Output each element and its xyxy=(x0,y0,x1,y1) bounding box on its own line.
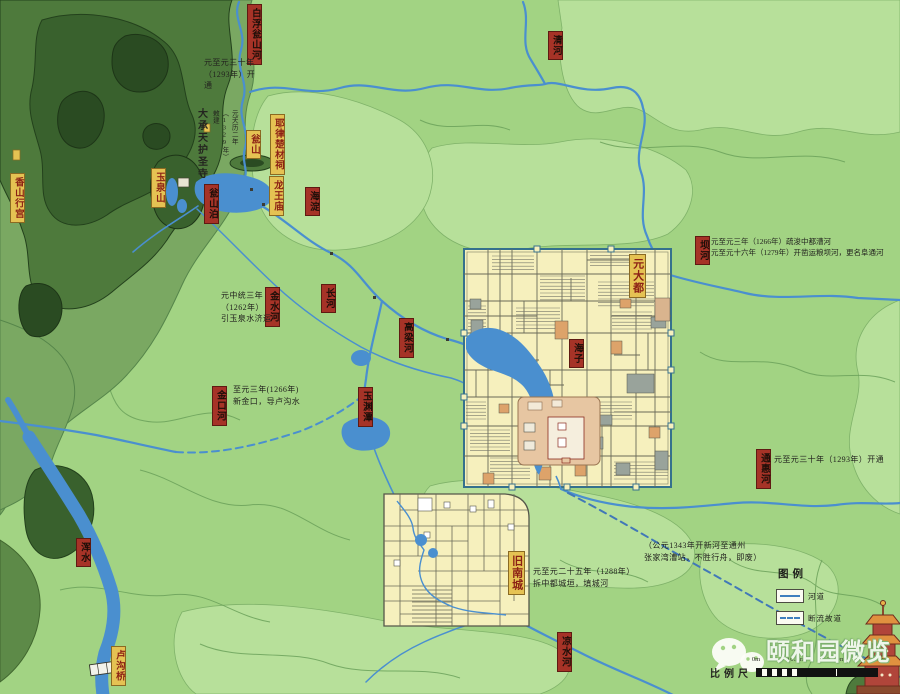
map-label-xiangshan: 香山行宫 xyxy=(10,173,25,223)
map-label-qinghe: 清河 xyxy=(548,31,563,60)
western-mountains xyxy=(0,0,254,682)
legend-box: 图例 河道 断流故道 xyxy=(744,566,842,625)
river-qinghe xyxy=(523,2,545,84)
imperial-palace xyxy=(518,397,600,465)
river-bahe xyxy=(667,274,900,300)
legend-river-label: 河道 xyxy=(808,591,825,602)
legend-dried-sample xyxy=(776,611,804,625)
map-label-note-1329: 元天历二年（1329年）敕建 xyxy=(210,110,238,162)
map-label-yuyuantan: 玉渊潭 xyxy=(358,387,373,427)
scale-bar-title: 比例尺 xyxy=(710,665,752,680)
map-label-yuandadu: 元大都 xyxy=(629,254,646,298)
pond-zizhuyuan xyxy=(351,350,371,366)
map-label-longwang: 龙王庙 xyxy=(269,176,284,216)
river-yuyuantan-outlet xyxy=(374,448,397,501)
map-label-dachengtian: 大承天护圣寺 xyxy=(193,108,208,180)
map-label-yelu: 耶律楚材祠 xyxy=(270,114,285,175)
map-label-note-bahe: 元至元三年（1266年）疏浚中都漕河 元至元十六年（1279年）开凿运粮坝河，更… xyxy=(711,237,884,259)
map-label-tonghuihe: 通惠河 xyxy=(756,449,771,489)
map-label-note-1266jk: 至元三年(1266年) 新金口，导卢沟水 xyxy=(233,384,300,407)
scale-tick-0: 0m xyxy=(752,656,760,663)
map-label-baifu: 白浮瓮山河 xyxy=(247,4,262,65)
map-label-note-1288: 元至元二十五年（1288年） 拆中都城垣，填城河 xyxy=(533,566,635,589)
scale-segments xyxy=(756,668,878,677)
map-label-changhe: 长河 xyxy=(321,284,336,313)
legend-item-dried: 断流故道 xyxy=(744,611,842,625)
legend-item-river: 河道 xyxy=(744,589,842,603)
map-label-yuquanshan: 玉泉山 xyxy=(151,168,166,208)
map-label-gaolianghe: 高梁河 xyxy=(399,318,414,358)
map-label-haizi: 海子 xyxy=(569,339,584,368)
map-label-lugouqiao: 卢沟桥 xyxy=(111,646,126,686)
map-label-hunshui: 浑水 xyxy=(76,538,91,567)
pond-jnc-2 xyxy=(428,548,438,558)
pond-jnc-1 xyxy=(415,534,427,546)
map-label-jinkouhe: 金口河 xyxy=(212,386,227,426)
legend-dried-label: 断流故道 xyxy=(808,613,842,624)
map-label-wengshan: 瓮山 xyxy=(246,130,261,159)
watermark-text: 颐和园微览 xyxy=(766,632,891,667)
map-label-wengshanpo: 瓮山泊 xyxy=(204,184,219,224)
legend-title: 图例 xyxy=(778,566,842,581)
map-label-note-1343: （公元1343年开新河至通州 张家湾漕站，不胜行舟，即废） xyxy=(644,540,762,563)
map-label-note-1262: 元中统三年 （1262年） 引玉泉水济运 xyxy=(221,290,271,325)
map-label-bahe: 坝河 xyxy=(695,236,710,265)
yuan-dynasty-water-system-map: 白浮瓮山河清河瓮山泊海淀金水河长河高梁河金口河玉渊潭海子坝河通惠河凉水河浑水香山… xyxy=(0,0,900,694)
map-label-jiunancheng: 旧南城 xyxy=(508,551,525,595)
legend-river-sample xyxy=(776,589,804,603)
map-label-liangshuihe: 凉水河 xyxy=(557,632,572,672)
map-label-note-1293s: 元至元三十年（1293年）开通 xyxy=(774,454,884,466)
map-label-note-1293n: 元至元三十年 （1293年）开 通 xyxy=(204,57,255,92)
map-label-haidian: 海淀 xyxy=(305,187,320,216)
